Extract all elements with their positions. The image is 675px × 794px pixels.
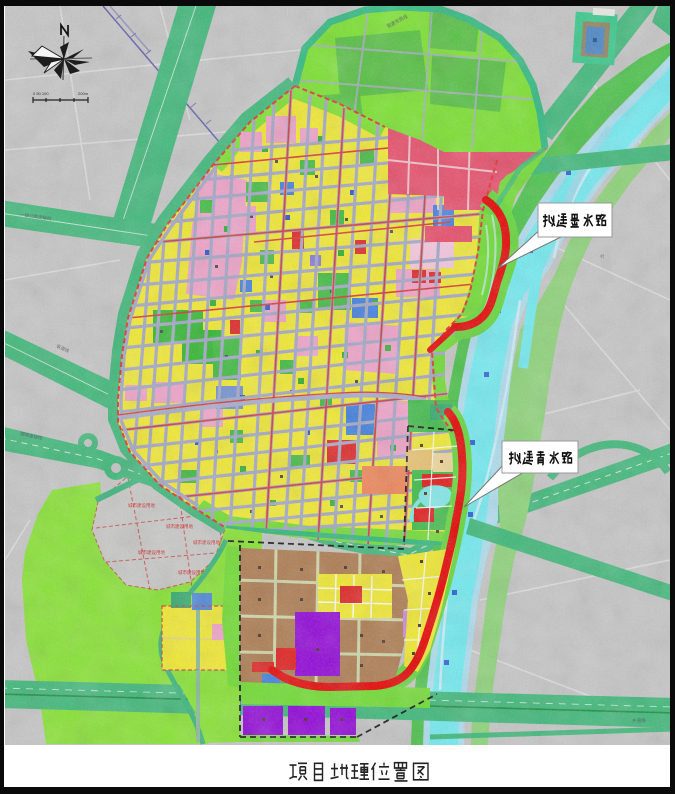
svg-text:村: 村	[600, 253, 605, 259]
svg-text:0 50 100: 0 50 100	[33, 91, 49, 96]
svg-text:200m: 200m	[78, 91, 89, 96]
svg-text:乡道线: 乡道线	[632, 717, 646, 724]
